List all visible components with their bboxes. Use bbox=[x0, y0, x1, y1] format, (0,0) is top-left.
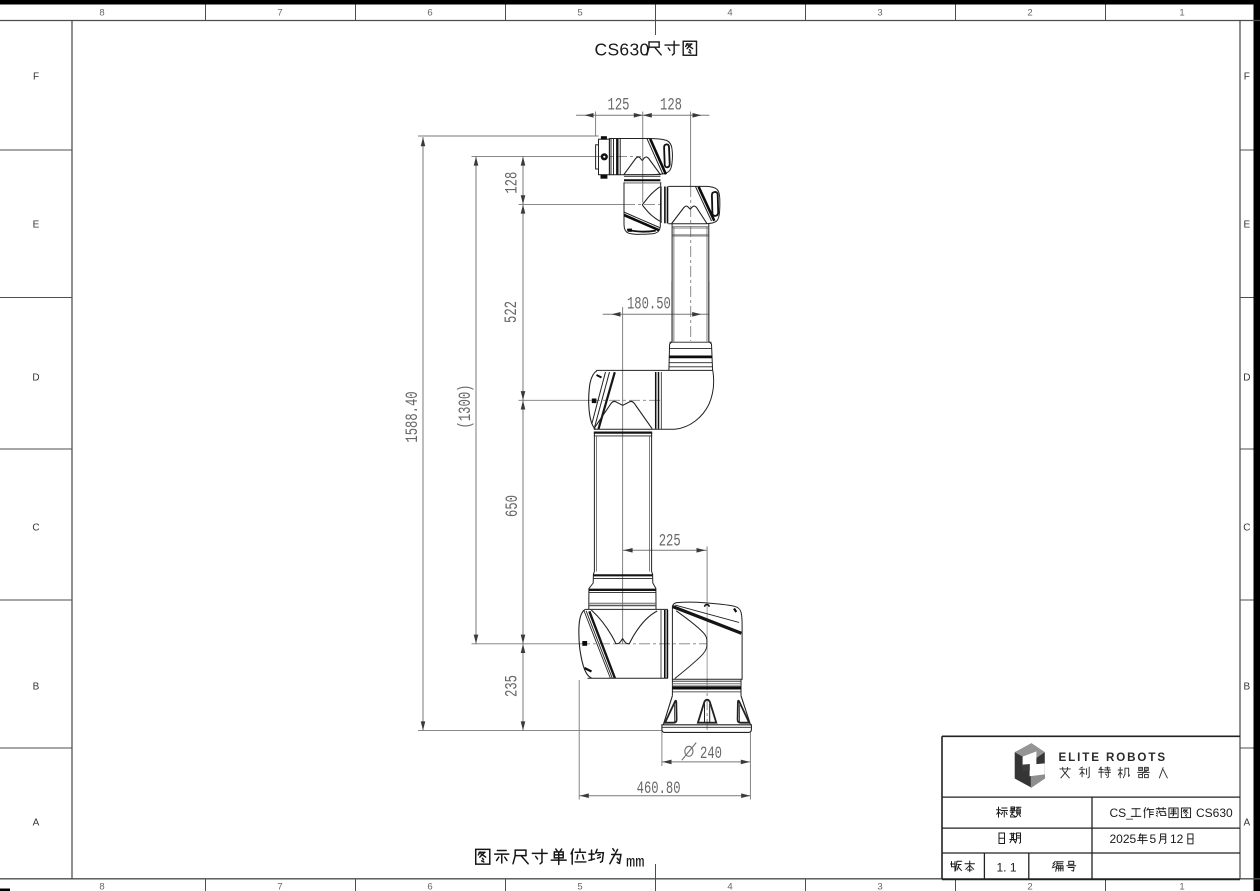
svg-text:D: D bbox=[1243, 373, 1250, 384]
svg-text:2025: 2025 bbox=[1110, 832, 1137, 846]
svg-text:B: B bbox=[33, 682, 40, 693]
svg-text:CS630: CS630 bbox=[595, 40, 650, 60]
svg-text:5: 5 bbox=[1150, 832, 1157, 846]
svg-text:235: 235 bbox=[501, 675, 522, 697]
svg-text:C: C bbox=[1243, 523, 1250, 534]
svg-text:225: 225 bbox=[659, 530, 681, 551]
svg-text:B: B bbox=[1243, 682, 1250, 693]
svg-text:128: 128 bbox=[501, 172, 522, 194]
svg-text:180.50: 180.50 bbox=[627, 293, 671, 314]
svg-text:E: E bbox=[1243, 220, 1250, 231]
svg-text:7: 7 bbox=[277, 882, 282, 891]
svg-text:2: 2 bbox=[1027, 882, 1032, 891]
svg-text:650: 650 bbox=[502, 495, 523, 517]
svg-text:5: 5 bbox=[577, 882, 582, 891]
svg-text:4: 4 bbox=[727, 882, 732, 891]
svg-text:3: 3 bbox=[877, 882, 882, 891]
svg-text:460.80: 460.80 bbox=[637, 778, 681, 799]
svg-text:8: 8 bbox=[99, 882, 104, 891]
svg-text:1588.40: 1588.40 bbox=[402, 391, 423, 442]
svg-text:2: 2 bbox=[1027, 8, 1032, 19]
svg-text:ELITE ROBOTS: ELITE ROBOTS bbox=[1059, 751, 1167, 764]
svg-text:C: C bbox=[32, 523, 39, 534]
svg-text:12: 12 bbox=[1170, 832, 1184, 846]
svg-text:(1300): (1300) bbox=[455, 385, 476, 429]
svg-text:128: 128 bbox=[660, 94, 682, 115]
svg-text:3: 3 bbox=[877, 8, 882, 19]
svg-text:240: 240 bbox=[700, 743, 722, 764]
svg-text:6: 6 bbox=[427, 882, 432, 891]
svg-text:522: 522 bbox=[501, 301, 522, 323]
svg-text:8: 8 bbox=[99, 8, 104, 19]
svg-text:5: 5 bbox=[577, 8, 582, 19]
svg-text:CS630: CS630 bbox=[1196, 806, 1233, 820]
svg-text:E: E bbox=[33, 220, 40, 231]
svg-text:A: A bbox=[1243, 818, 1250, 829]
svg-text:4: 4 bbox=[727, 8, 732, 19]
svg-text:F: F bbox=[33, 72, 39, 83]
svg-text:D: D bbox=[32, 373, 39, 384]
svg-text:6: 6 bbox=[427, 8, 432, 19]
svg-text:1: 1 bbox=[1179, 8, 1184, 19]
svg-text:1: 1 bbox=[1179, 882, 1184, 891]
svg-text:A: A bbox=[33, 818, 40, 829]
svg-text:CS_: CS_ bbox=[1110, 806, 1134, 820]
svg-text:125: 125 bbox=[608, 94, 630, 115]
svg-text:mm: mm bbox=[626, 853, 645, 871]
svg-text:F: F bbox=[1244, 72, 1250, 83]
svg-text:7: 7 bbox=[277, 8, 282, 19]
svg-text:1. 1: 1. 1 bbox=[996, 861, 1016, 875]
